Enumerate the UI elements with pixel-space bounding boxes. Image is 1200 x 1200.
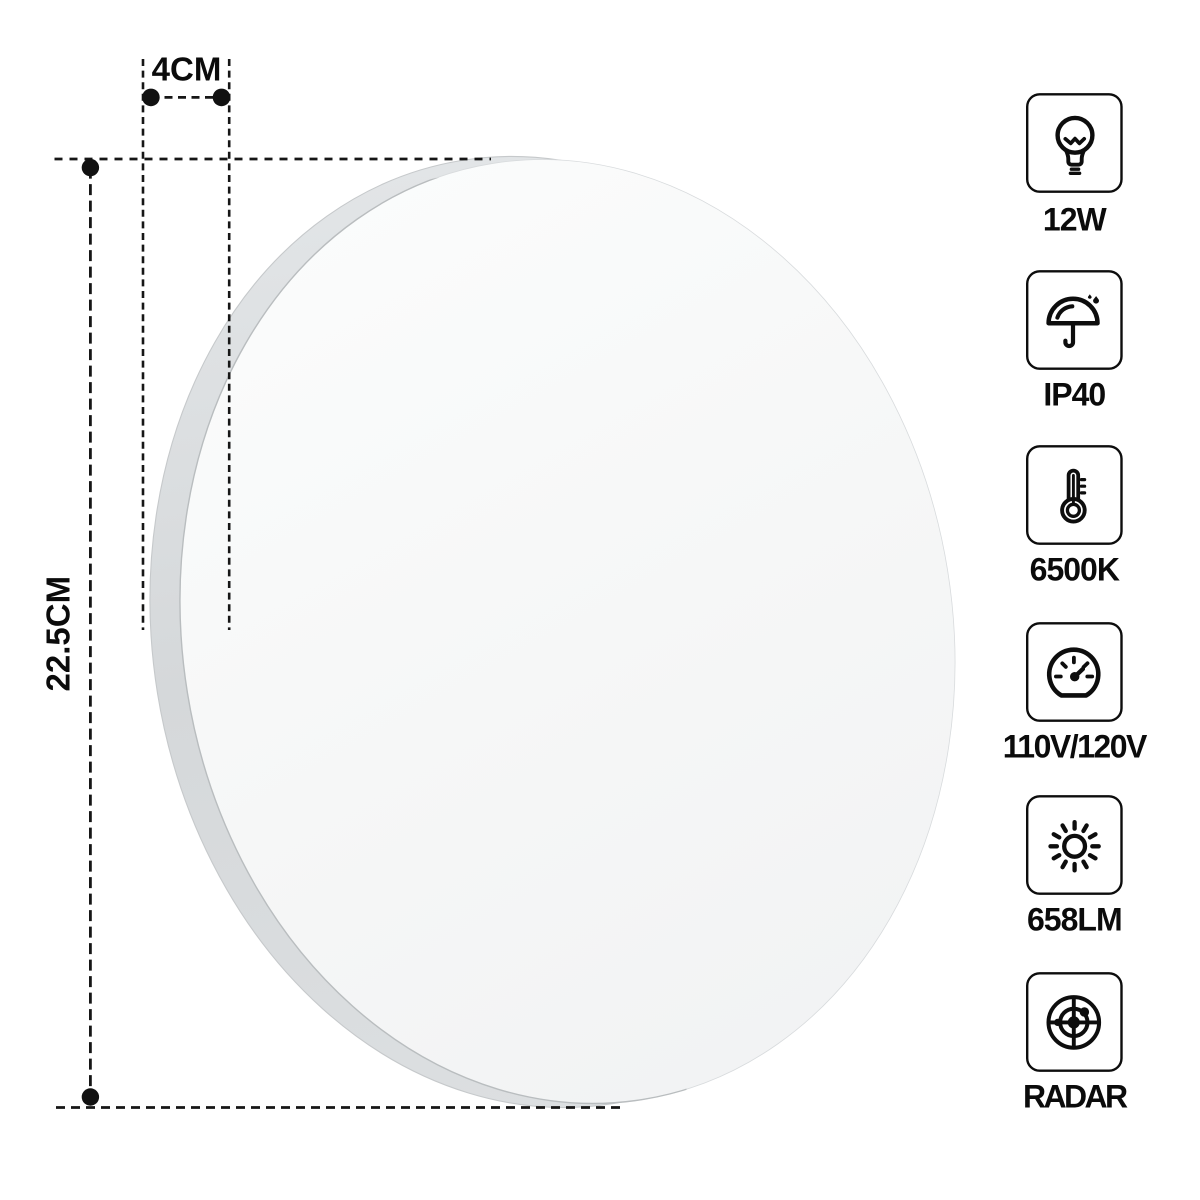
svg-text:4CM: 4CM (152, 50, 222, 87)
svg-text:6500K: 6500K (1030, 552, 1120, 588)
svg-text:110V/120V: 110V/120V (1003, 729, 1148, 765)
svg-text:RADAR: RADAR (1023, 1079, 1128, 1115)
svg-text:22.5CM: 22.5CM (40, 576, 77, 692)
svg-text:12W: 12W (1043, 202, 1108, 238)
svg-text:658LM: 658LM (1027, 902, 1122, 938)
svg-text:IP40: IP40 (1043, 377, 1105, 413)
